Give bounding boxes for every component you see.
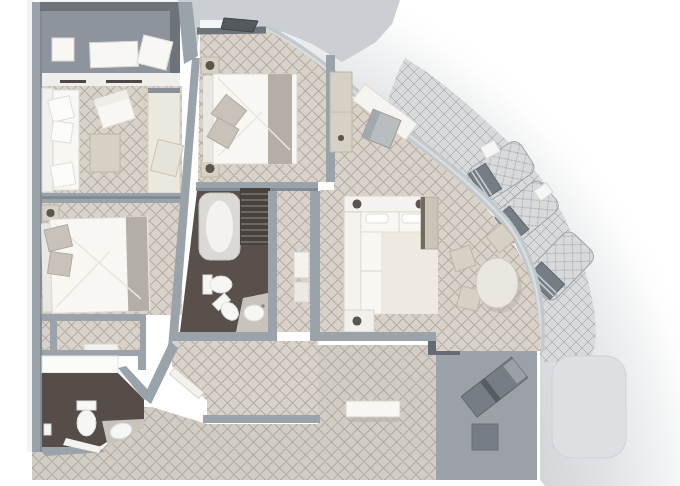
faucet bbox=[261, 304, 265, 308]
balcony-lounger-seat bbox=[90, 41, 139, 68]
balcony-top-wall bbox=[40, 2, 178, 11]
vanity-counter bbox=[42, 356, 118, 373]
sofa-pillow bbox=[50, 162, 75, 187]
floor-plan-canvas bbox=[0, 0, 680, 486]
bed-headboard bbox=[203, 76, 213, 162]
vestibule-wall bbox=[42, 314, 144, 321]
second-bedroom bbox=[41, 203, 182, 315]
tv-screen bbox=[421, 197, 425, 249]
door-track-tick bbox=[60, 80, 86, 83]
table-lamp bbox=[206, 61, 215, 70]
sofa-pillow bbox=[48, 96, 75, 123]
bed-runner bbox=[126, 217, 149, 312]
cube-table bbox=[472, 424, 498, 450]
shelf-unit bbox=[294, 252, 309, 278]
door-track-tick bbox=[106, 80, 142, 83]
toilet-bowl bbox=[210, 276, 232, 293]
balcony-right-wall bbox=[170, 2, 180, 74]
window-band bbox=[42, 73, 180, 86]
tv-cabinet bbox=[421, 197, 438, 249]
sofa-seat-left bbox=[361, 232, 382, 314]
sink bbox=[244, 305, 264, 321]
double-bed bbox=[41, 217, 150, 314]
bench-shadow bbox=[349, 417, 399, 422]
nook-outer-wall bbox=[310, 191, 320, 341]
table-lamp bbox=[47, 209, 55, 217]
double-bed bbox=[203, 74, 297, 164]
bathtub-basin bbox=[206, 201, 233, 253]
hull-window bbox=[221, 18, 258, 32]
table-lamp bbox=[353, 200, 362, 209]
wardrobe-knob bbox=[338, 135, 344, 141]
sofa-back-left bbox=[344, 212, 361, 314]
vestibule-right-wall bbox=[140, 314, 146, 352]
balcony-door-band bbox=[42, 73, 180, 86]
toilet bbox=[203, 275, 232, 294]
bedroom-window-sill bbox=[200, 20, 224, 28]
forward-balcony bbox=[40, 0, 180, 74]
living-south-wall bbox=[320, 332, 436, 341]
aft-terrace bbox=[428, 337, 537, 480]
table-lamp bbox=[353, 317, 362, 326]
bathroom-bottom-wall bbox=[172, 332, 277, 341]
dining-table bbox=[476, 258, 518, 308]
bench bbox=[346, 401, 400, 417]
floor-plan-stage bbox=[0, 0, 680, 486]
balcony-table bbox=[52, 38, 74, 61]
terrace-left-wall bbox=[436, 341, 448, 480]
shelf-unit bbox=[294, 282, 309, 302]
sofa-pillow bbox=[51, 121, 74, 144]
vanity-desk-edge bbox=[148, 88, 180, 93]
bathroom-right-wall bbox=[138, 350, 146, 370]
ottoman bbox=[90, 134, 120, 172]
sitting-room bbox=[42, 86, 183, 193]
table-lamp bbox=[206, 164, 215, 173]
bathroom-right-wall bbox=[268, 191, 277, 332]
bathroom-top-wall bbox=[42, 350, 146, 356]
toilet-tank bbox=[77, 401, 96, 410]
light-switch bbox=[44, 424, 51, 435]
bed-pillow bbox=[47, 252, 72, 277]
bed-runner bbox=[268, 74, 292, 164]
sitting-bedroom-wall-core bbox=[42, 196, 182, 199]
entry-bottom-wall bbox=[203, 415, 320, 423]
spa-tub bbox=[552, 356, 626, 458]
toilet-bowl bbox=[77, 410, 96, 436]
vestibule-side-wall bbox=[50, 321, 57, 355]
sofa-pillow bbox=[366, 214, 388, 223]
